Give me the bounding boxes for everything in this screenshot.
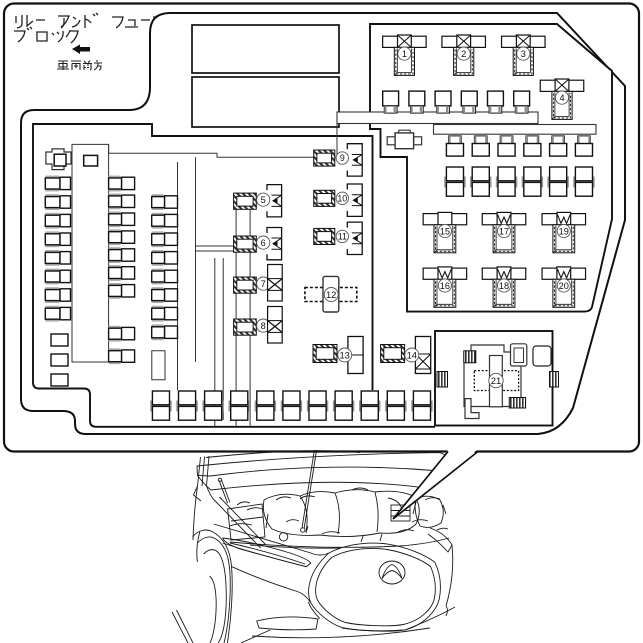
svg-text:18: 18 — [499, 281, 509, 291]
svg-text:6: 6 — [261, 238, 266, 248]
svg-text:7: 7 — [261, 279, 266, 289]
svg-text:16: 16 — [440, 281, 450, 291]
svg-text:2: 2 — [461, 49, 466, 59]
svg-text:3: 3 — [521, 49, 526, 59]
svg-text:17: 17 — [499, 226, 509, 236]
svg-text:20: 20 — [559, 281, 569, 291]
svg-text:4: 4 — [559, 93, 564, 103]
svg-text:10: 10 — [337, 193, 347, 203]
svg-text:19: 19 — [559, 226, 569, 236]
svg-text:14: 14 — [407, 349, 417, 360]
svg-text:5: 5 — [261, 195, 266, 205]
svg-text:15: 15 — [440, 226, 450, 236]
svg-text:1: 1 — [402, 49, 407, 59]
svg-text:21: 21 — [491, 375, 501, 386]
svg-text:9: 9 — [340, 153, 345, 163]
svg-text:13: 13 — [339, 349, 349, 360]
svg-text:11: 11 — [338, 232, 347, 242]
svg-text:12: 12 — [326, 289, 336, 300]
svg-text:8: 8 — [261, 321, 266, 331]
